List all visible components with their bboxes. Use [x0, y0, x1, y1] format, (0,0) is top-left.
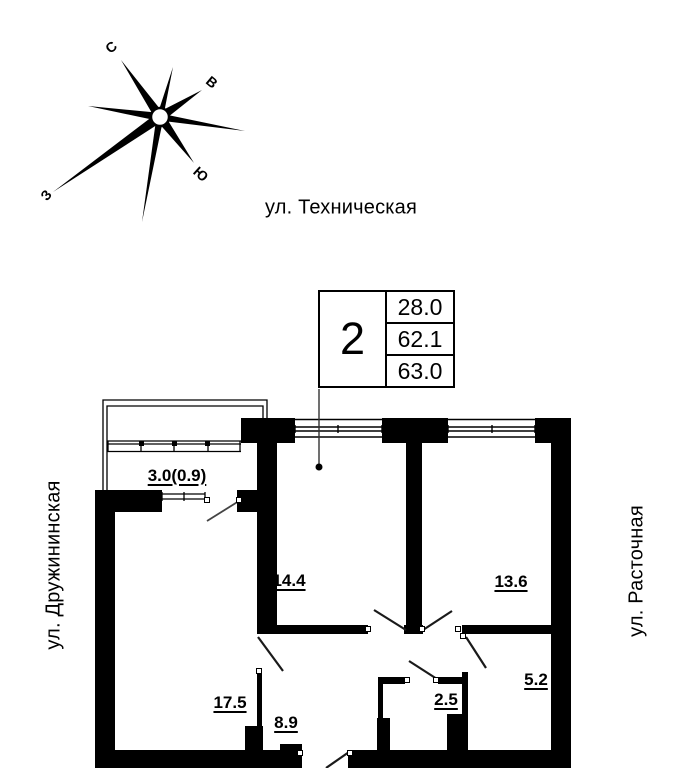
balcony-glazing-window — [107, 441, 241, 452]
street-label-right: ул. Расточная — [626, 505, 649, 637]
entrance-door-swing — [326, 752, 349, 768]
room-area-hallway: 8.9 — [274, 713, 298, 733]
room-area-room-left: 14.4 — [272, 571, 305, 591]
wall — [438, 677, 468, 684]
info-values-column: 28.0 62.1 63.0 — [387, 292, 453, 386]
kitchen-niche-door-swing — [466, 637, 486, 668]
wall — [280, 744, 302, 750]
apartment-info-box: 2 28.0 62.1 63.0 — [318, 290, 455, 388]
balcony-door-swing — [207, 501, 239, 521]
info-rooms-count: 2 — [320, 292, 387, 386]
room-area-room-right: 13.6 — [494, 572, 527, 592]
wall — [257, 443, 277, 634]
window-balcony-wall — [162, 492, 205, 501]
room-left-door-swing — [374, 610, 406, 630]
wall — [277, 625, 368, 634]
wall — [95, 490, 115, 768]
bathroom-door-swing — [409, 661, 437, 679]
info-area: 62.1 — [387, 322, 453, 354]
room-area-balcony: 3.0(0.9) — [148, 466, 207, 486]
duct-shaft — [447, 714, 467, 750]
wall — [348, 750, 571, 768]
window-room-left — [295, 420, 382, 438]
floor-plan-page: С В Ю З ул. Техническая ул. Дружининская… — [0, 0, 679, 768]
window-room-right — [448, 420, 535, 438]
wall — [241, 418, 295, 443]
info-leader-line — [316, 389, 323, 471]
wall — [95, 750, 302, 768]
wall — [245, 726, 263, 750]
street-label-top: ул. Техническая — [265, 197, 417, 220]
wall — [406, 443, 422, 634]
street-label-left: ул. Дружининская — [43, 480, 66, 649]
wall — [382, 418, 448, 443]
wall — [551, 418, 571, 768]
room-area-living-room: 17.5 — [213, 693, 246, 713]
room-area-kitchen-niche: 5.2 — [524, 670, 548, 690]
wall — [377, 718, 390, 750]
compass-ray-west — [53, 113, 163, 192]
living-room-door-swing — [258, 637, 283, 671]
wall — [95, 490, 162, 512]
info-living-area: 28.0 — [387, 292, 453, 322]
room-area-bathroom: 2.5 — [434, 690, 458, 710]
wall — [462, 625, 571, 634]
info-total-area: 63.0 — [387, 354, 453, 386]
room-right-door-swing — [423, 611, 452, 630]
compass-hub — [151, 108, 169, 126]
